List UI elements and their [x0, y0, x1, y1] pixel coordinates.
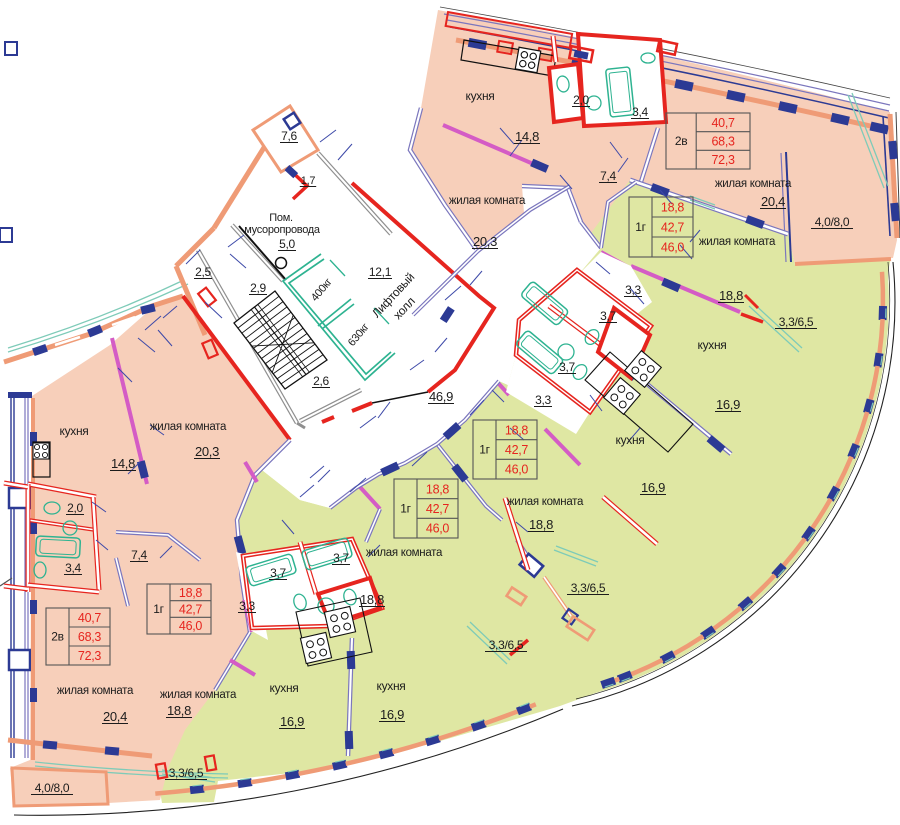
- svg-text:жилая комната: жилая комната: [150, 421, 227, 433]
- svg-text:4,0/8,0: 4,0/8,0: [35, 781, 70, 795]
- svg-text:46,0: 46,0: [179, 619, 202, 633]
- svg-text:кухня: кухня: [59, 424, 88, 438]
- svg-text:жилая комната: жилая комната: [715, 178, 792, 190]
- svg-text:7,6: 7,6: [281, 129, 297, 143]
- svg-text:14,8: 14,8: [515, 129, 539, 144]
- svg-text:40,7: 40,7: [712, 116, 735, 130]
- svg-text:20,3: 20,3: [195, 444, 219, 459]
- svg-text:18,8: 18,8: [426, 482, 449, 496]
- svg-text:3,4: 3,4: [65, 561, 81, 575]
- svg-text:3,3: 3,3: [239, 599, 255, 613]
- svg-text:Пом.: Пом.: [269, 212, 293, 224]
- svg-text:1г: 1г: [400, 502, 411, 516]
- svg-text:1,7: 1,7: [301, 175, 316, 187]
- svg-text:3,7: 3,7: [600, 309, 616, 323]
- svg-text:кухня: кухня: [615, 433, 644, 447]
- svg-text:жилая комната: жилая комната: [449, 195, 526, 207]
- svg-text:7,4: 7,4: [600, 169, 616, 183]
- svg-text:72,3: 72,3: [78, 649, 101, 663]
- svg-text:жилая комната: жилая комната: [160, 689, 237, 701]
- svg-text:3,3/6,5: 3,3/6,5: [489, 638, 524, 652]
- svg-text:кухня: кухня: [376, 679, 405, 693]
- svg-text:68,3: 68,3: [712, 135, 735, 149]
- svg-text:жилая комната: жилая комната: [57, 685, 134, 697]
- svg-text:5,0: 5,0: [279, 237, 295, 251]
- svg-text:3,3: 3,3: [625, 283, 641, 297]
- svg-text:1г: 1г: [479, 443, 490, 457]
- svg-text:16,9: 16,9: [641, 480, 665, 495]
- svg-text:16,9: 16,9: [380, 707, 404, 722]
- svg-text:42,7: 42,7: [505, 443, 528, 457]
- svg-text:16,9: 16,9: [280, 714, 304, 729]
- svg-text:1г: 1г: [153, 602, 164, 616]
- svg-text:42,7: 42,7: [426, 502, 449, 516]
- svg-text:жилая комната: жилая комната: [366, 547, 443, 559]
- svg-text:жилая комната: жилая комната: [699, 236, 776, 248]
- svg-text:жилая комната: жилая комната: [507, 496, 584, 508]
- svg-text:46,0: 46,0: [661, 241, 684, 255]
- svg-text:20,4: 20,4: [761, 194, 785, 209]
- svg-text:42,7: 42,7: [661, 221, 684, 235]
- svg-text:18,8: 18,8: [167, 703, 191, 718]
- svg-text:12,1: 12,1: [369, 265, 392, 279]
- svg-text:68,3: 68,3: [78, 630, 101, 644]
- svg-text:16,9: 16,9: [716, 397, 740, 412]
- svg-text:18,8: 18,8: [360, 592, 384, 607]
- svg-text:72,3: 72,3: [712, 153, 735, 167]
- svg-text:3,4: 3,4: [632, 105, 648, 119]
- svg-text:14,8: 14,8: [111, 456, 135, 471]
- svg-text:4,0/8,0: 4,0/8,0: [815, 215, 850, 229]
- svg-text:46,0: 46,0: [426, 522, 449, 536]
- svg-text:46,0: 46,0: [505, 463, 528, 477]
- svg-text:1г: 1г: [635, 220, 646, 234]
- svg-text:40,7: 40,7: [78, 611, 101, 625]
- svg-text:2,6: 2,6: [313, 374, 329, 388]
- svg-text:42,7: 42,7: [179, 603, 202, 617]
- svg-text:кухня: кухня: [465, 89, 494, 103]
- svg-text:18,8: 18,8: [179, 586, 202, 600]
- svg-text:кухня: кухня: [697, 338, 726, 352]
- svg-text:3,3/6,5: 3,3/6,5: [571, 581, 606, 595]
- svg-text:3,7: 3,7: [333, 551, 349, 565]
- svg-text:20,4: 20,4: [103, 709, 127, 724]
- svg-text:2в: 2в: [51, 630, 63, 644]
- svg-text:46,9: 46,9: [429, 389, 453, 404]
- svg-text:3,3/6,5: 3,3/6,5: [169, 766, 204, 780]
- svg-text:18,8: 18,8: [505, 423, 528, 437]
- svg-text:2,5: 2,5: [195, 265, 211, 279]
- svg-text:18,8: 18,8: [529, 517, 553, 532]
- svg-text:18,8: 18,8: [719, 288, 743, 303]
- svg-text:7,4: 7,4: [131, 548, 147, 562]
- svg-text:20,3: 20,3: [473, 234, 497, 249]
- svg-text:3,3: 3,3: [535, 393, 551, 407]
- svg-text:3,7: 3,7: [559, 360, 575, 374]
- svg-text:3,3/6,5: 3,3/6,5: [779, 315, 814, 329]
- svg-text:мусоропровода: мусоропровода: [244, 224, 321, 236]
- svg-text:кухня: кухня: [269, 681, 298, 695]
- svg-text:2,9: 2,9: [250, 281, 266, 295]
- svg-text:2в: 2в: [675, 134, 687, 148]
- svg-text:2,0: 2,0: [573, 93, 589, 107]
- svg-text:3,7: 3,7: [270, 566, 286, 580]
- svg-text:18,8: 18,8: [661, 201, 684, 215]
- svg-text:2,0: 2,0: [67, 501, 83, 515]
